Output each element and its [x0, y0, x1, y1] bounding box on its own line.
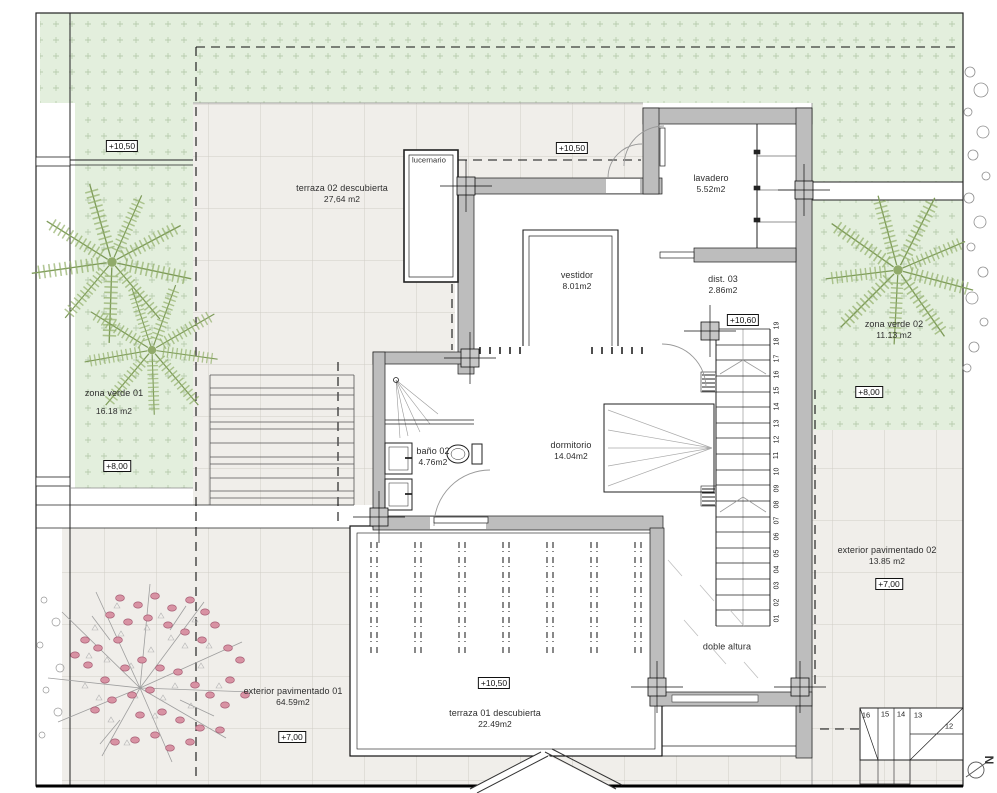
floor-plan-drawing — [0, 0, 997, 793]
level-marker: +10,60 — [727, 314, 759, 326]
room-label-dist-03: dist. 03 2.86m2 — [708, 274, 738, 296]
lucernario-skylight — [404, 150, 458, 282]
exterior-step-number: 15 — [881, 710, 889, 719]
stair-step-number: 13 — [773, 419, 780, 427]
stair-step-number: 03 — [773, 582, 780, 590]
exterior-step-number: 16 — [862, 711, 870, 720]
stair-step-number: 12 — [773, 435, 780, 443]
stair-step-numbers: 01020304050607080910111213141516171819 — [769, 322, 784, 622]
stair-step-number: 14 — [773, 403, 780, 411]
stair-step-number: 15 — [773, 387, 780, 395]
stair-step-number: 19 — [773, 322, 780, 330]
room-label-vestidor: vestidor 8.01m2 — [561, 270, 593, 292]
room-label-zona-verde-01: zona verde 01 16.18 m2 — [85, 384, 143, 420]
level-marker: +10,50 — [106, 140, 138, 152]
room-label-doble-altura: doble altura — [703, 642, 751, 653]
stair-step-number: 07 — [773, 517, 780, 525]
stair-step-number: 04 — [773, 566, 780, 574]
room-label-lavadero: lavadero 5.52m2 — [693, 173, 728, 195]
level-marker: +7,00 — [875, 578, 903, 590]
exterior-step-number: 14 — [897, 710, 905, 719]
stair-step-number: 10 — [773, 468, 780, 476]
stair-step-number: 17 — [773, 354, 780, 362]
stair-step-number: 16 — [773, 370, 780, 378]
room-label-zona-verde-02: zona verde 02 11.13 m2 — [865, 319, 923, 341]
stair-step-number: 18 — [773, 338, 780, 346]
room-label-dormitorio: dormitorio 14.04m2 — [550, 440, 591, 462]
bed — [604, 404, 714, 492]
stair-step-number: 08 — [773, 501, 780, 509]
level-marker: +7,00 — [278, 731, 306, 743]
stair-step-number: 05 — [773, 549, 780, 557]
stair-step-number: 11 — [773, 452, 780, 459]
north-label: N — [982, 756, 996, 765]
room-label-terraza-02: terraza 02 descubierta 27,64 m2 — [296, 183, 388, 205]
room-label-terraza-01: terraza 01 descubierta 22.49m2 — [449, 708, 541, 730]
exterior-step-number: 12 — [945, 722, 953, 731]
level-marker: +10,50 — [478, 677, 510, 689]
stair-step-number: 02 — [773, 598, 780, 606]
pergola-louvers — [362, 538, 650, 656]
room-label-lucernario: lucernario — [412, 155, 446, 166]
level-marker: +8,00 — [103, 460, 131, 472]
floor-plan-canvas: terraza 02 descubierta 27,64 m2 lucernar… — [0, 0, 997, 793]
room-label-exterior-pav-02: exterior pavimentado 02 13.85 m2 — [838, 545, 937, 567]
stair-step-number: 09 — [773, 484, 780, 492]
level-marker: +10,50 — [556, 142, 588, 154]
stair-step-number: 01 — [773, 614, 780, 622]
level-marker: +8,00 — [855, 386, 883, 398]
stair-step-number: 06 — [773, 533, 780, 541]
room-label-bano-02: baño 02 4.76m2 — [416, 446, 449, 468]
exterior-step-number: 13 — [914, 711, 922, 720]
room-label-exterior-pav-01: exterior pavimentado 01 64.59m2 — [244, 686, 343, 708]
